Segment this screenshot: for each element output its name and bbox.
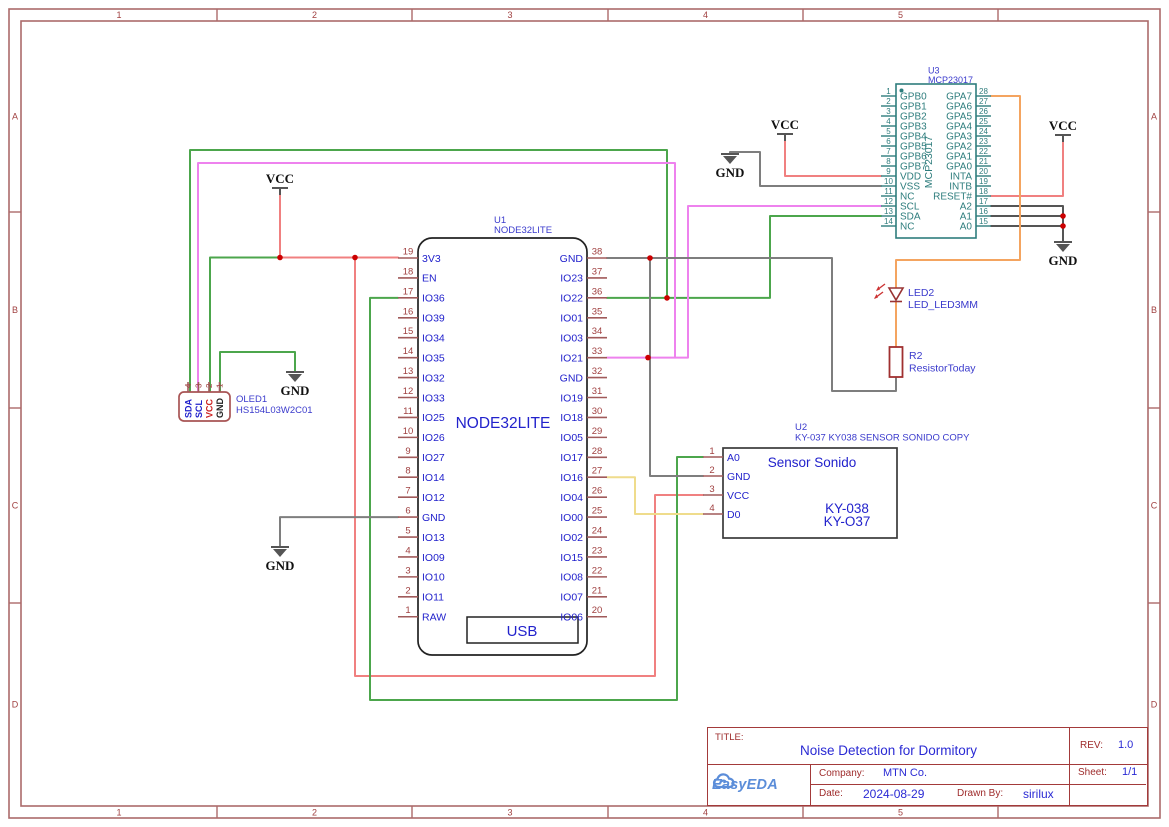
u1-pin-name: IO03: [560, 333, 583, 345]
u3-pin-number: 18: [979, 187, 988, 196]
u1-pin-name: IO06: [560, 612, 583, 624]
u3-pin-number: 17: [979, 197, 988, 206]
u1-pin-name: GND: [560, 253, 584, 265]
u3-pin-number: 28: [979, 87, 988, 96]
u1-pin-number: 14: [403, 346, 414, 357]
u3-pin-number: 26: [979, 107, 988, 116]
frame-column-label: 1: [116, 808, 121, 818]
oled-pin-name: GND: [215, 398, 225, 419]
frame-row-label: C: [12, 501, 19, 511]
vcc-symbol: VCC: [266, 171, 294, 195]
u1-pin-name: IO15: [560, 552, 583, 564]
u1-pin-number: 31: [592, 386, 603, 397]
vcc-label: VCC: [266, 171, 294, 186]
sheet-cell: Sheet: 1/1: [1069, 765, 1146, 785]
u3-pin-number: 10: [884, 177, 893, 186]
vcc-label: VCC: [771, 117, 799, 132]
u1-pin-number: 25: [592, 506, 603, 517]
u1-pin-number: 33: [592, 346, 603, 357]
u1-pin-name: IO19: [560, 392, 583, 404]
u1-pin-number: 23: [592, 545, 603, 556]
u3-pin-number: 19: [979, 177, 988, 186]
u2-pin-number: 1: [709, 446, 714, 457]
u1-pin-name: 3V3: [422, 253, 441, 265]
led-triangle[interactable]: [889, 288, 903, 300]
r2-value: ResistorToday: [909, 363, 976, 375]
u3-pin-number: 3: [886, 107, 891, 116]
u3-pin-name: A0: [960, 222, 973, 233]
u1-pin-name: GND: [422, 512, 446, 524]
frame-column-label: 4: [703, 10, 708, 20]
u1-pin-name: IO25: [422, 412, 445, 424]
frame-column-label: 3: [507, 808, 512, 818]
u1-pin-name: IO22: [560, 293, 583, 305]
u1-pin-name: IO14: [422, 472, 445, 484]
u3-pin-number: 14: [884, 217, 893, 226]
frame-row-label: A: [1151, 112, 1157, 122]
junction-dot: [1060, 213, 1066, 219]
frame-row-label: A: [12, 112, 18, 122]
sheet-title: Noise Detection for Dormitory: [708, 743, 1069, 758]
u3-pin-number: 24: [979, 127, 988, 136]
r2-ref: R2: [909, 350, 923, 362]
u3-pin-number: 1: [886, 87, 891, 96]
u1-pin-number: 3: [405, 565, 410, 576]
u1-pin-name: IO23: [560, 273, 583, 285]
gnd-symbol: GND: [1049, 242, 1078, 268]
date-row: Date: 2024-08-29 Drawn By: sirilux: [811, 785, 1069, 806]
u2-pin-name: GND: [727, 471, 751, 483]
wire-u3vss-to-gnd[interactable]: [730, 152, 881, 186]
sheet-label: Sheet:: [1078, 767, 1107, 778]
date-value: 2024-08-29: [863, 787, 924, 801]
oled-pin-number: 4: [184, 383, 193, 388]
u3-pin-name: NC: [900, 222, 914, 233]
wire-vcc-to-u3reset[interactable]: [991, 142, 1063, 196]
component-led2[interactable]: LED2LED_LED3MM: [874, 284, 978, 311]
u1-label: NODE32LITE: [456, 415, 551, 432]
company-label: Company:: [819, 768, 865, 779]
u1-pin-name: IO33: [422, 392, 445, 404]
u3-pin-number: 15: [979, 217, 988, 226]
date-label: Date:: [819, 788, 843, 799]
oled-pin-number: 3: [195, 383, 204, 388]
junction-dot: [645, 355, 651, 361]
u1-pin-name: IO35: [422, 352, 445, 364]
frame-column-label: 2: [312, 10, 317, 20]
u1-pin-name: IO00: [560, 512, 583, 524]
u1-pin-name: IO08: [560, 572, 583, 584]
company-value: MTN Co.: [883, 767, 927, 779]
resistor-body[interactable]: [890, 347, 903, 377]
title-label: TITLE:: [715, 732, 744, 743]
schematic-sheet: 1122334455AABBCCDDVCCVCCVCCGNDGNDGNDGNDU…: [0, 0, 1169, 827]
u1-pin-name: RAW: [422, 612, 446, 624]
led-ref: LED2: [908, 287, 934, 299]
u1-pin-name: IO05: [560, 432, 583, 444]
u2-title: Sensor Sonido: [768, 455, 857, 470]
wire-io21-to-scl[interactable]: [607, 206, 881, 358]
gnd-label: GND: [266, 558, 295, 573]
u1-pin-number: 17: [403, 286, 414, 297]
company-row: Company: MTN Co.: [811, 765, 1069, 785]
u1-pin-name: IO02: [560, 532, 583, 544]
junction-dot: [1060, 223, 1066, 229]
u1-pin-number: 7: [405, 486, 410, 497]
sheet-value: 1/1: [1122, 766, 1137, 778]
frame-column-label: 3: [507, 10, 512, 20]
frame-column-label: 5: [898, 10, 903, 20]
u2-pin-number: 2: [709, 465, 714, 476]
u3-pin-number: 9: [886, 167, 891, 176]
u1-pin-name: IO04: [560, 492, 583, 504]
u1-pin-number: 13: [403, 366, 414, 377]
u1-pin-name: IO34: [422, 333, 445, 345]
u1-pin-name: IO01: [560, 313, 583, 325]
u2-pin-number: 4: [709, 503, 714, 514]
wire-u3a2-to-gnd[interactable]: [991, 206, 1063, 242]
wire-gnd-to-u2[interactable]: [650, 258, 703, 476]
u1-pin-number: 8: [405, 466, 410, 477]
u1-pin-number: 34: [592, 326, 603, 337]
led-value: LED_LED3MM: [908, 299, 978, 311]
oled-pin-name: SDA: [184, 398, 194, 418]
u1-pin-number: 37: [592, 266, 603, 277]
u1-pin-name: IO16: [560, 472, 583, 484]
u1-pin-number: 36: [592, 286, 603, 297]
wire-u1gnd6[interactable]: [280, 517, 398, 547]
u1-pin-name: IO32: [422, 372, 445, 384]
gnd-arrow: [1056, 244, 1070, 252]
u2-pin-number: 3: [709, 484, 714, 495]
u3-pin-number: 11: [884, 187, 893, 196]
easyeda-cloud-icon: [712, 771, 738, 793]
frame-row-label: C: [1151, 501, 1158, 511]
title-block: TITLE: Noise Detection for Dormitory REV…: [707, 727, 1148, 806]
u3-ref: U3: [928, 66, 940, 76]
u2-pin-name: D0: [727, 509, 741, 521]
u1-pin-number: 4: [405, 545, 410, 556]
component-u2-sound-sensor[interactable]: U2KY-037 KY038 SENSOR SONIDO COPYSensor …: [703, 422, 970, 538]
empty-cell: [1069, 785, 1146, 806]
u1-pin-name: IO13: [422, 532, 445, 544]
frame-column-label: 2: [312, 808, 317, 818]
u1-pin-number: 38: [592, 247, 603, 258]
u1-pin-number: 27: [592, 466, 603, 477]
rev-value: 1.0: [1118, 739, 1133, 751]
oled-value: HS154L03W2C01: [236, 405, 313, 416]
junction-dot: [664, 295, 670, 301]
logo-cell: EasyEDA: [708, 765, 811, 805]
gnd-arrow: [723, 156, 737, 164]
oled-pin-number: 2: [205, 383, 214, 388]
gnd-arrow: [288, 374, 302, 382]
u3-pin-number: 12: [884, 197, 893, 206]
u1-pin-number: 35: [592, 306, 603, 317]
u3-pin-number: 4: [886, 117, 891, 126]
u3-pin-number: 8: [886, 157, 891, 166]
frame-column-label: 1: [116, 10, 121, 20]
u1-pin-name: IO17: [560, 452, 583, 464]
u3-pin-number: 21: [979, 157, 988, 166]
u1-pin-name: IO39: [422, 313, 445, 325]
drawn-by-label: Drawn By:: [957, 788, 1003, 799]
vcc-label: VCC: [1049, 118, 1077, 133]
u1-pin-number: 20: [592, 605, 603, 616]
u1-pin-number: 30: [592, 406, 603, 417]
u1-pin-name: GND: [560, 372, 584, 384]
oled-pin-name: SCL: [194, 399, 204, 418]
u3-pin-number: 5: [886, 127, 891, 136]
oled-pin-name: VCC: [205, 398, 215, 418]
u3-value: MCP23017: [928, 75, 973, 85]
gnd-label: GND: [281, 383, 310, 398]
u1-pin-number: 18: [403, 266, 414, 277]
u1-pin-number: 9: [405, 446, 410, 457]
frame-column-label: 5: [898, 808, 903, 818]
u1-pin-name: IO18: [560, 412, 583, 424]
frame-column-label: 4: [703, 808, 708, 818]
u1-pin-number: 24: [592, 526, 603, 537]
u1-value: NODE32LITE: [494, 225, 552, 236]
u2-model2: KY-O37: [824, 514, 871, 529]
easyeda-logo: EasyEDA: [712, 771, 808, 799]
junction-dot: [647, 255, 653, 261]
u2-ref: U2: [795, 422, 807, 433]
u1-pin-number: 19: [403, 247, 414, 258]
frame-row-label: B: [1151, 305, 1157, 315]
u1-pin-name: IO10: [422, 572, 445, 584]
u1-pin-number: 26: [592, 486, 603, 497]
u3-pin-number: 22: [979, 147, 988, 156]
u2-value: KY-037 KY038 SENSOR SONIDO COPY: [795, 433, 970, 444]
u1-pin-number: 16: [403, 306, 414, 317]
u1-pin-name: IO09: [422, 552, 445, 564]
u3-pin-number: 25: [979, 117, 988, 126]
u1-pin-name: IO27: [422, 452, 445, 464]
gnd-label: GND: [716, 165, 745, 180]
component-u3-mcp23017[interactable]: U3MCP23017MCP230171GPB02GPB13GPB24GPB35G…: [881, 66, 991, 239]
u3-pin-number: 2: [886, 97, 891, 106]
u1-pin-name: IO36: [422, 293, 445, 305]
u1-pin-number: 21: [592, 585, 603, 596]
u1-pin-name: IO07: [560, 592, 583, 604]
gnd-symbol: GND: [281, 372, 310, 398]
junction-dot: [277, 255, 283, 261]
u1-pin-name: EN: [422, 273, 437, 285]
component-r2[interactable]: R2ResistorToday: [890, 347, 977, 377]
oled-ref: OLED1: [236, 394, 267, 405]
u2-pin-name: VCC: [727, 490, 750, 502]
frame-row-label: B: [12, 305, 18, 315]
u1-pin-name: IO12: [422, 492, 445, 504]
schematic-canvas[interactable]: 1122334455AABBCCDDVCCVCCVCCGNDGNDGNDGNDU…: [0, 0, 1169, 827]
u3-pin-number: 7: [886, 147, 891, 156]
u3-pin-number: 16: [979, 207, 988, 216]
gnd-arrow: [273, 549, 287, 557]
rev-label: REV:: [1080, 740, 1103, 751]
gnd-label: GND: [1049, 253, 1078, 268]
u1-pin-number: 11: [403, 406, 413, 417]
component-u1-node32lite[interactable]: U1NODE32LITENODE32LITEUSB193V318EN17IO36…: [398, 215, 607, 655]
drawn-by-value: sirilux: [1023, 787, 1054, 801]
u2-pin-name: A0: [727, 452, 740, 464]
u1-pin-number: 12: [403, 386, 414, 397]
u3-pin-number: 6: [886, 137, 891, 146]
u1-usb-label: USB: [507, 623, 538, 640]
u3-pin-number: 27: [979, 97, 988, 106]
vcc-symbol: VCC: [771, 117, 799, 141]
u1-pin-name: IO21: [560, 352, 583, 364]
frame-row-label: D: [1151, 700, 1158, 710]
vcc-symbol: VCC: [1049, 118, 1077, 142]
u1-pin-number: 6: [405, 506, 410, 517]
frame-row-label: D: [12, 700, 19, 710]
gnd-symbol: GND: [266, 547, 295, 573]
u1-pin-number: 28: [592, 446, 603, 457]
u1-pin-name: IO26: [422, 432, 445, 444]
u1-pin-number: 29: [592, 426, 603, 437]
led-ray-head: [876, 286, 880, 291]
gnd-symbol: GND: [716, 154, 745, 180]
wire-vcc-to-u3vdd[interactable]: [785, 141, 881, 176]
u1-pin-number: 22: [592, 565, 603, 576]
u3-pin-number: 23: [979, 137, 988, 146]
oled-pin-number: 1: [216, 383, 225, 388]
rev-cell: REV: 1.0: [1069, 728, 1146, 765]
u1-pin-number: 15: [403, 326, 414, 337]
u1-pin-number: 2: [405, 585, 410, 596]
u3-pin-number: 20: [979, 167, 988, 176]
u1-pin-number: 10: [403, 426, 414, 437]
u3-pin-number: 13: [884, 207, 893, 216]
u1-pin-number: 32: [592, 366, 603, 377]
u1-pin-number: 1: [405, 605, 410, 616]
led-ray-head: [874, 294, 878, 299]
u1-pin-number: 5: [405, 526, 410, 537]
junction-dot: [352, 255, 358, 261]
u1-pin-name: IO11: [422, 592, 444, 604]
wire-vcc-to-3v3[interactable]: [280, 195, 398, 258]
